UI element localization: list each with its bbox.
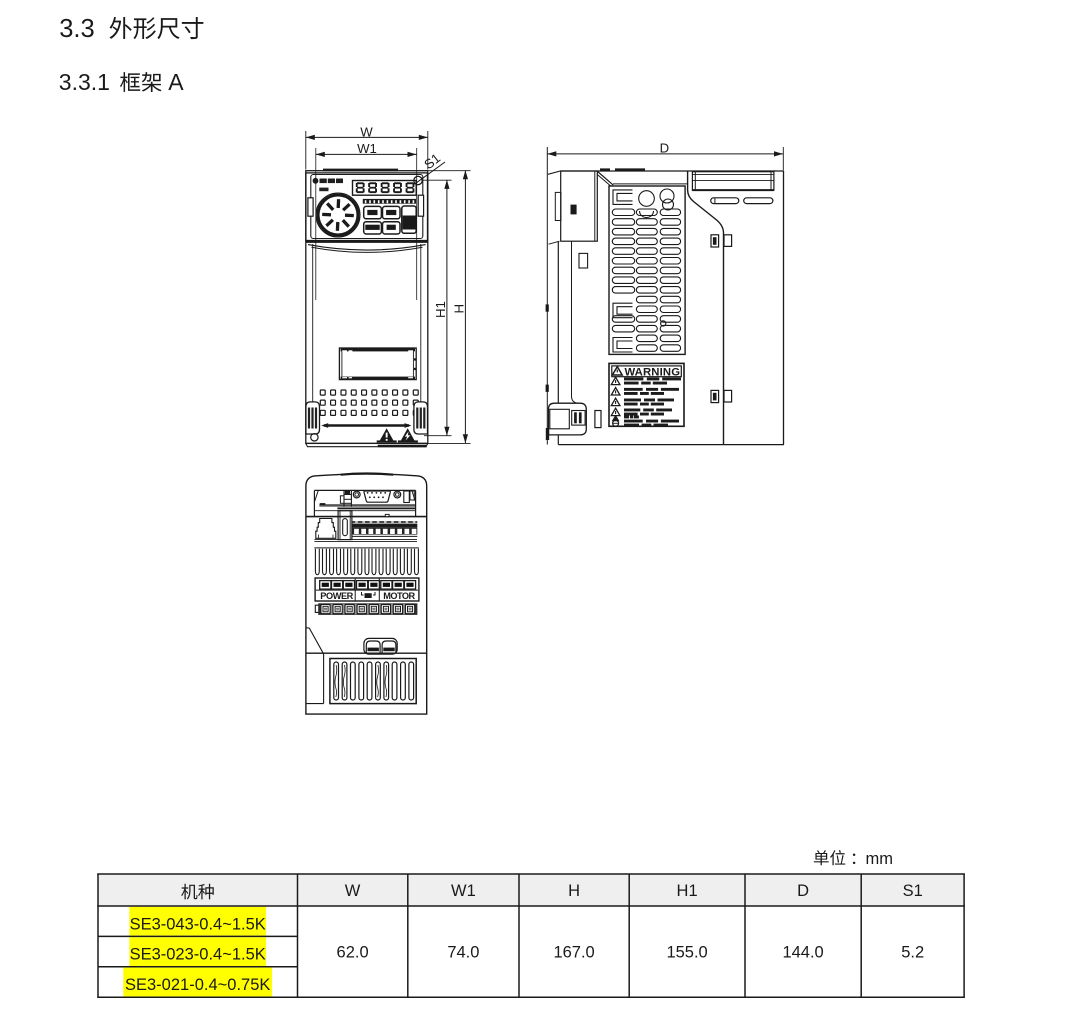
svg-text:D: D xyxy=(660,140,670,155)
svg-text:SE3-043-0.4~1.5K: SE3-043-0.4~1.5K xyxy=(130,915,266,933)
svg-text:POWER: POWER xyxy=(320,591,353,601)
svg-text:167.0: 167.0 xyxy=(553,944,594,962)
svg-text:155.0: 155.0 xyxy=(666,944,707,962)
svg-text:S1: S1 xyxy=(421,150,443,172)
svg-text:W: W xyxy=(360,125,373,140)
svg-text:SE3-021-0.4~0.75K: SE3-021-0.4~0.75K xyxy=(125,976,270,994)
svg-text:D: D xyxy=(797,882,809,900)
svg-text:SE3-023-0.4~1.5K: SE3-023-0.4~1.5K xyxy=(130,946,266,964)
svg-text:W1: W1 xyxy=(357,141,377,156)
svg-text:H1: H1 xyxy=(433,301,448,318)
svg-text:mm: mm xyxy=(866,850,894,868)
svg-text:W1: W1 xyxy=(451,882,476,900)
svg-text:MOTOR: MOTOR xyxy=(383,591,415,601)
svg-text:62.0: 62.0 xyxy=(337,944,369,962)
svg-text:3.3.1: 3.3.1 xyxy=(59,69,110,95)
svg-text:A: A xyxy=(168,69,184,95)
svg-text:S1: S1 xyxy=(903,882,923,900)
svg-text:H: H xyxy=(452,304,467,314)
svg-text:144.0: 144.0 xyxy=(782,944,823,962)
svg-text:H: H xyxy=(568,882,580,900)
svg-text:W: W xyxy=(345,882,361,900)
svg-text:3.3: 3.3 xyxy=(59,15,94,43)
svg-text:74.0: 74.0 xyxy=(447,944,479,962)
svg-text:5.2: 5.2 xyxy=(901,944,924,962)
svg-text:H1: H1 xyxy=(677,882,698,900)
svg-text:WARNING: WARNING xyxy=(625,366,681,378)
